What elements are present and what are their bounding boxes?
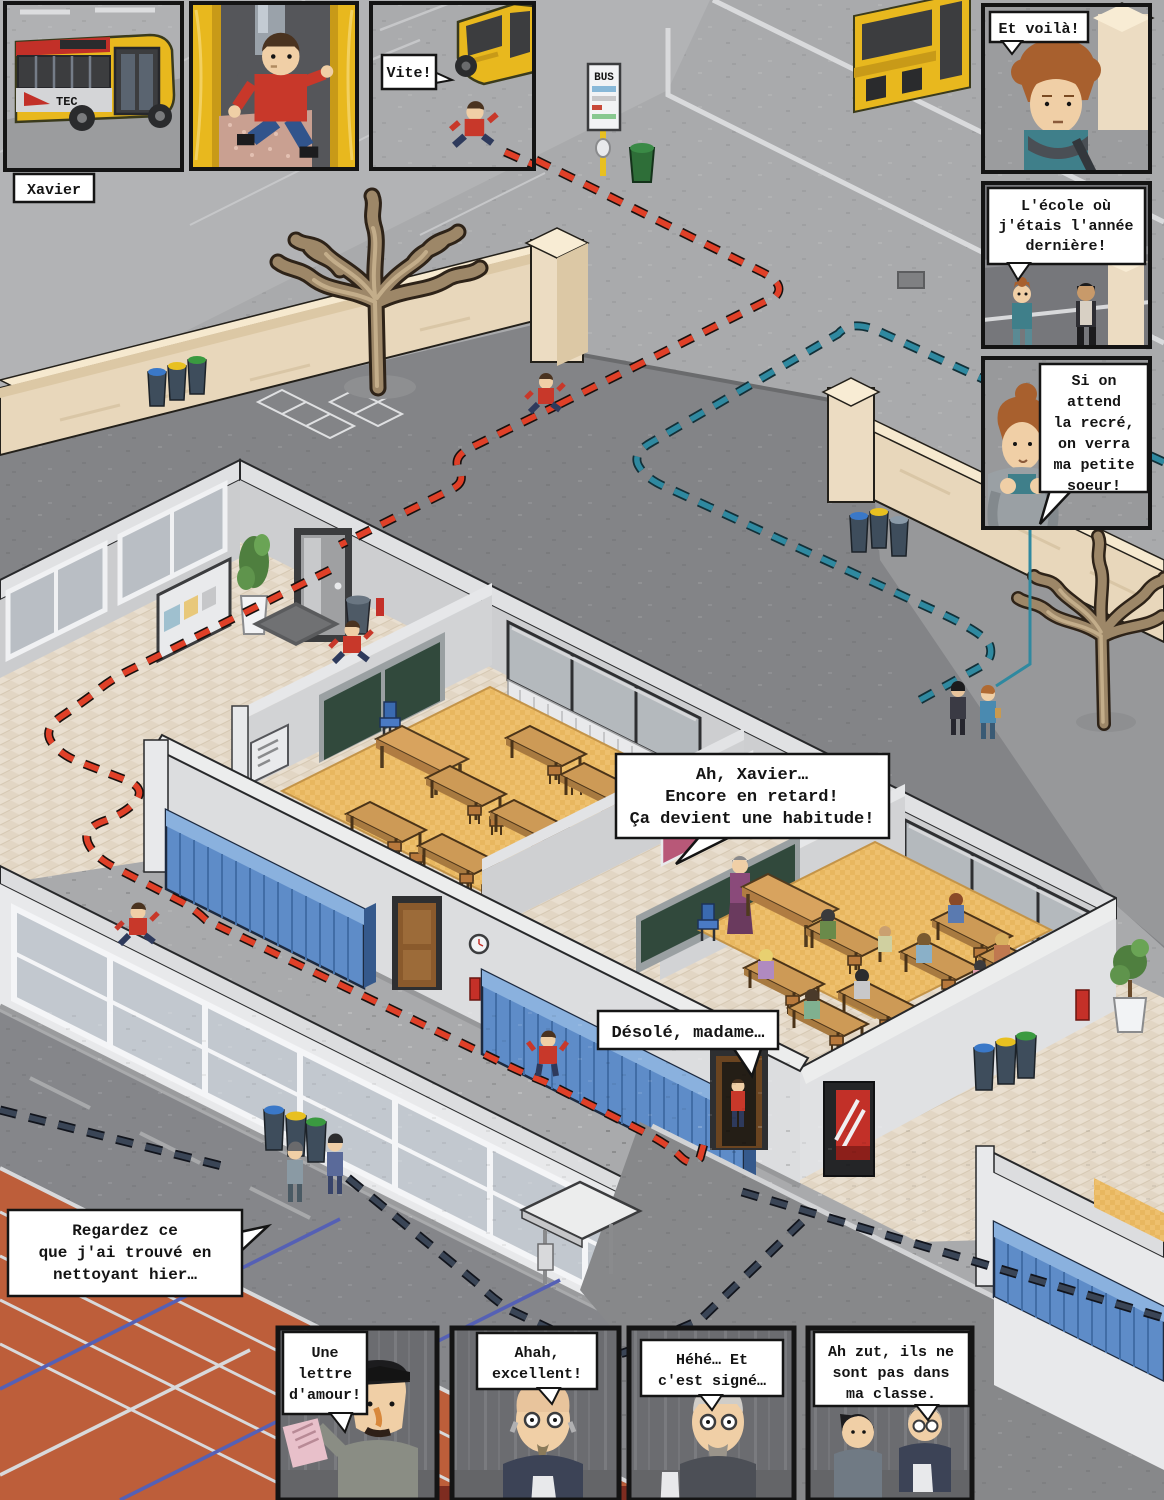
svg-text:excellent!: excellent!	[492, 1366, 582, 1383]
svg-text:Une: Une	[311, 1345, 338, 1362]
svg-text:sont pas dans: sont pas dans	[832, 1365, 949, 1382]
svg-text:TEC: TEC	[56, 95, 78, 109]
svg-text:nettoyant hier…: nettoyant hier…	[53, 1266, 197, 1284]
svg-text:Ça devient une habitude!: Ça devient une habitude!	[630, 810, 875, 829]
svg-text:ma classe.: ma classe.	[846, 1386, 936, 1403]
svg-text:que j'ai trouvé en: que j'ai trouvé en	[39, 1244, 212, 1262]
svg-text:BUS: BUS	[594, 72, 614, 84]
svg-text:d'amour!: d'amour!	[289, 1387, 361, 1404]
svg-text:Et voilà!: Et voilà!	[998, 21, 1079, 38]
svg-text:j'étais l'année: j'étais l'année	[998, 218, 1133, 235]
svg-text:Regardez ce: Regardez ce	[72, 1222, 178, 1240]
svg-text:Ahah,: Ahah,	[514, 1345, 559, 1362]
svg-text:Encore en retard!: Encore en retard!	[665, 788, 838, 807]
svg-text:soeur!: soeur!	[1067, 478, 1121, 495]
svg-text:on verra: on verra	[1058, 436, 1130, 453]
svg-text:Ah, Xavier…: Ah, Xavier…	[696, 766, 808, 785]
svg-text:Vite!: Vite!	[386, 65, 431, 82]
svg-text:ma petite: ma petite	[1053, 457, 1134, 474]
svg-text:Héhé… Et: Héhé… Et	[676, 1352, 748, 1369]
svg-text:dernière!: dernière!	[1025, 238, 1106, 255]
svg-text:Désolé, madame…: Désolé, madame…	[611, 1024, 764, 1043]
svg-text:Si on: Si on	[1071, 373, 1116, 390]
svg-text:attend: attend	[1067, 394, 1121, 411]
svg-text:Ah zut, ils ne: Ah zut, ils ne	[828, 1344, 954, 1361]
svg-text:c'est signé…: c'est signé…	[658, 1373, 766, 1390]
svg-text:Xavier: Xavier	[27, 182, 81, 199]
svg-text:L'école où: L'école où	[1021, 198, 1111, 215]
svg-text:la recré,: la recré,	[1053, 415, 1134, 432]
svg-text:lettre: lettre	[298, 1366, 352, 1383]
